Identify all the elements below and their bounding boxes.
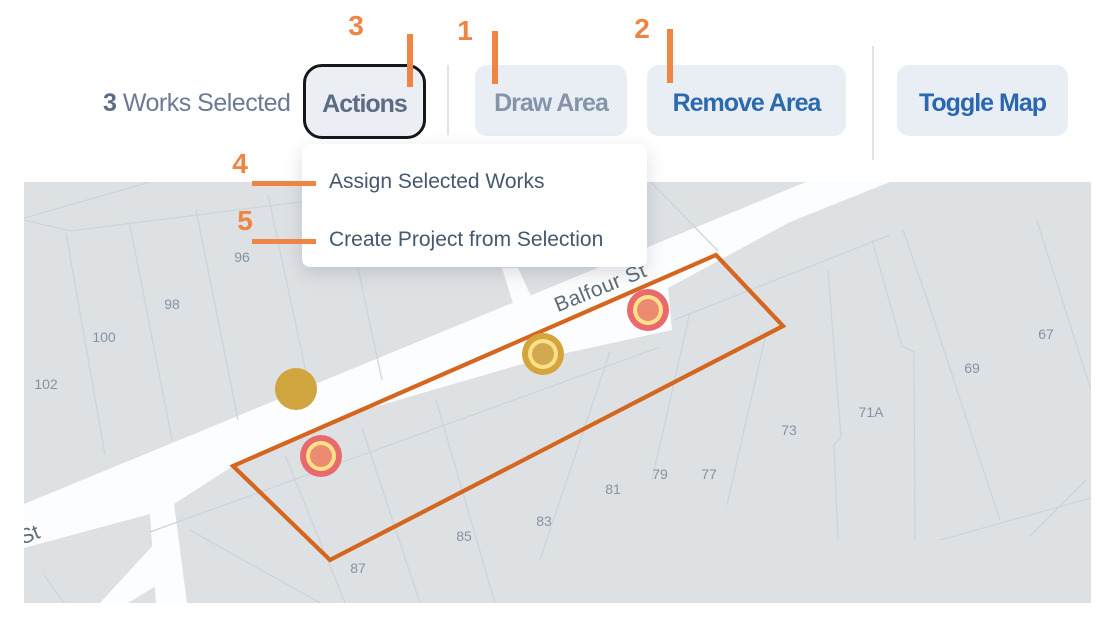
svg-text:83: 83 xyxy=(536,513,552,529)
svg-text:71A: 71A xyxy=(859,404,885,420)
svg-text:67: 67 xyxy=(1038,326,1054,342)
svg-text:85: 85 xyxy=(456,528,472,544)
svg-text:79: 79 xyxy=(652,466,668,482)
svg-text:100: 100 xyxy=(92,329,116,345)
svg-text:69: 69 xyxy=(964,360,980,376)
svg-text:73: 73 xyxy=(781,422,797,438)
svg-text:98: 98 xyxy=(164,296,180,312)
svg-text:102: 102 xyxy=(34,376,58,392)
svg-text:87: 87 xyxy=(350,560,366,576)
svg-text:81: 81 xyxy=(605,481,621,497)
svg-text:96: 96 xyxy=(234,249,250,265)
svg-text:77: 77 xyxy=(701,466,717,482)
